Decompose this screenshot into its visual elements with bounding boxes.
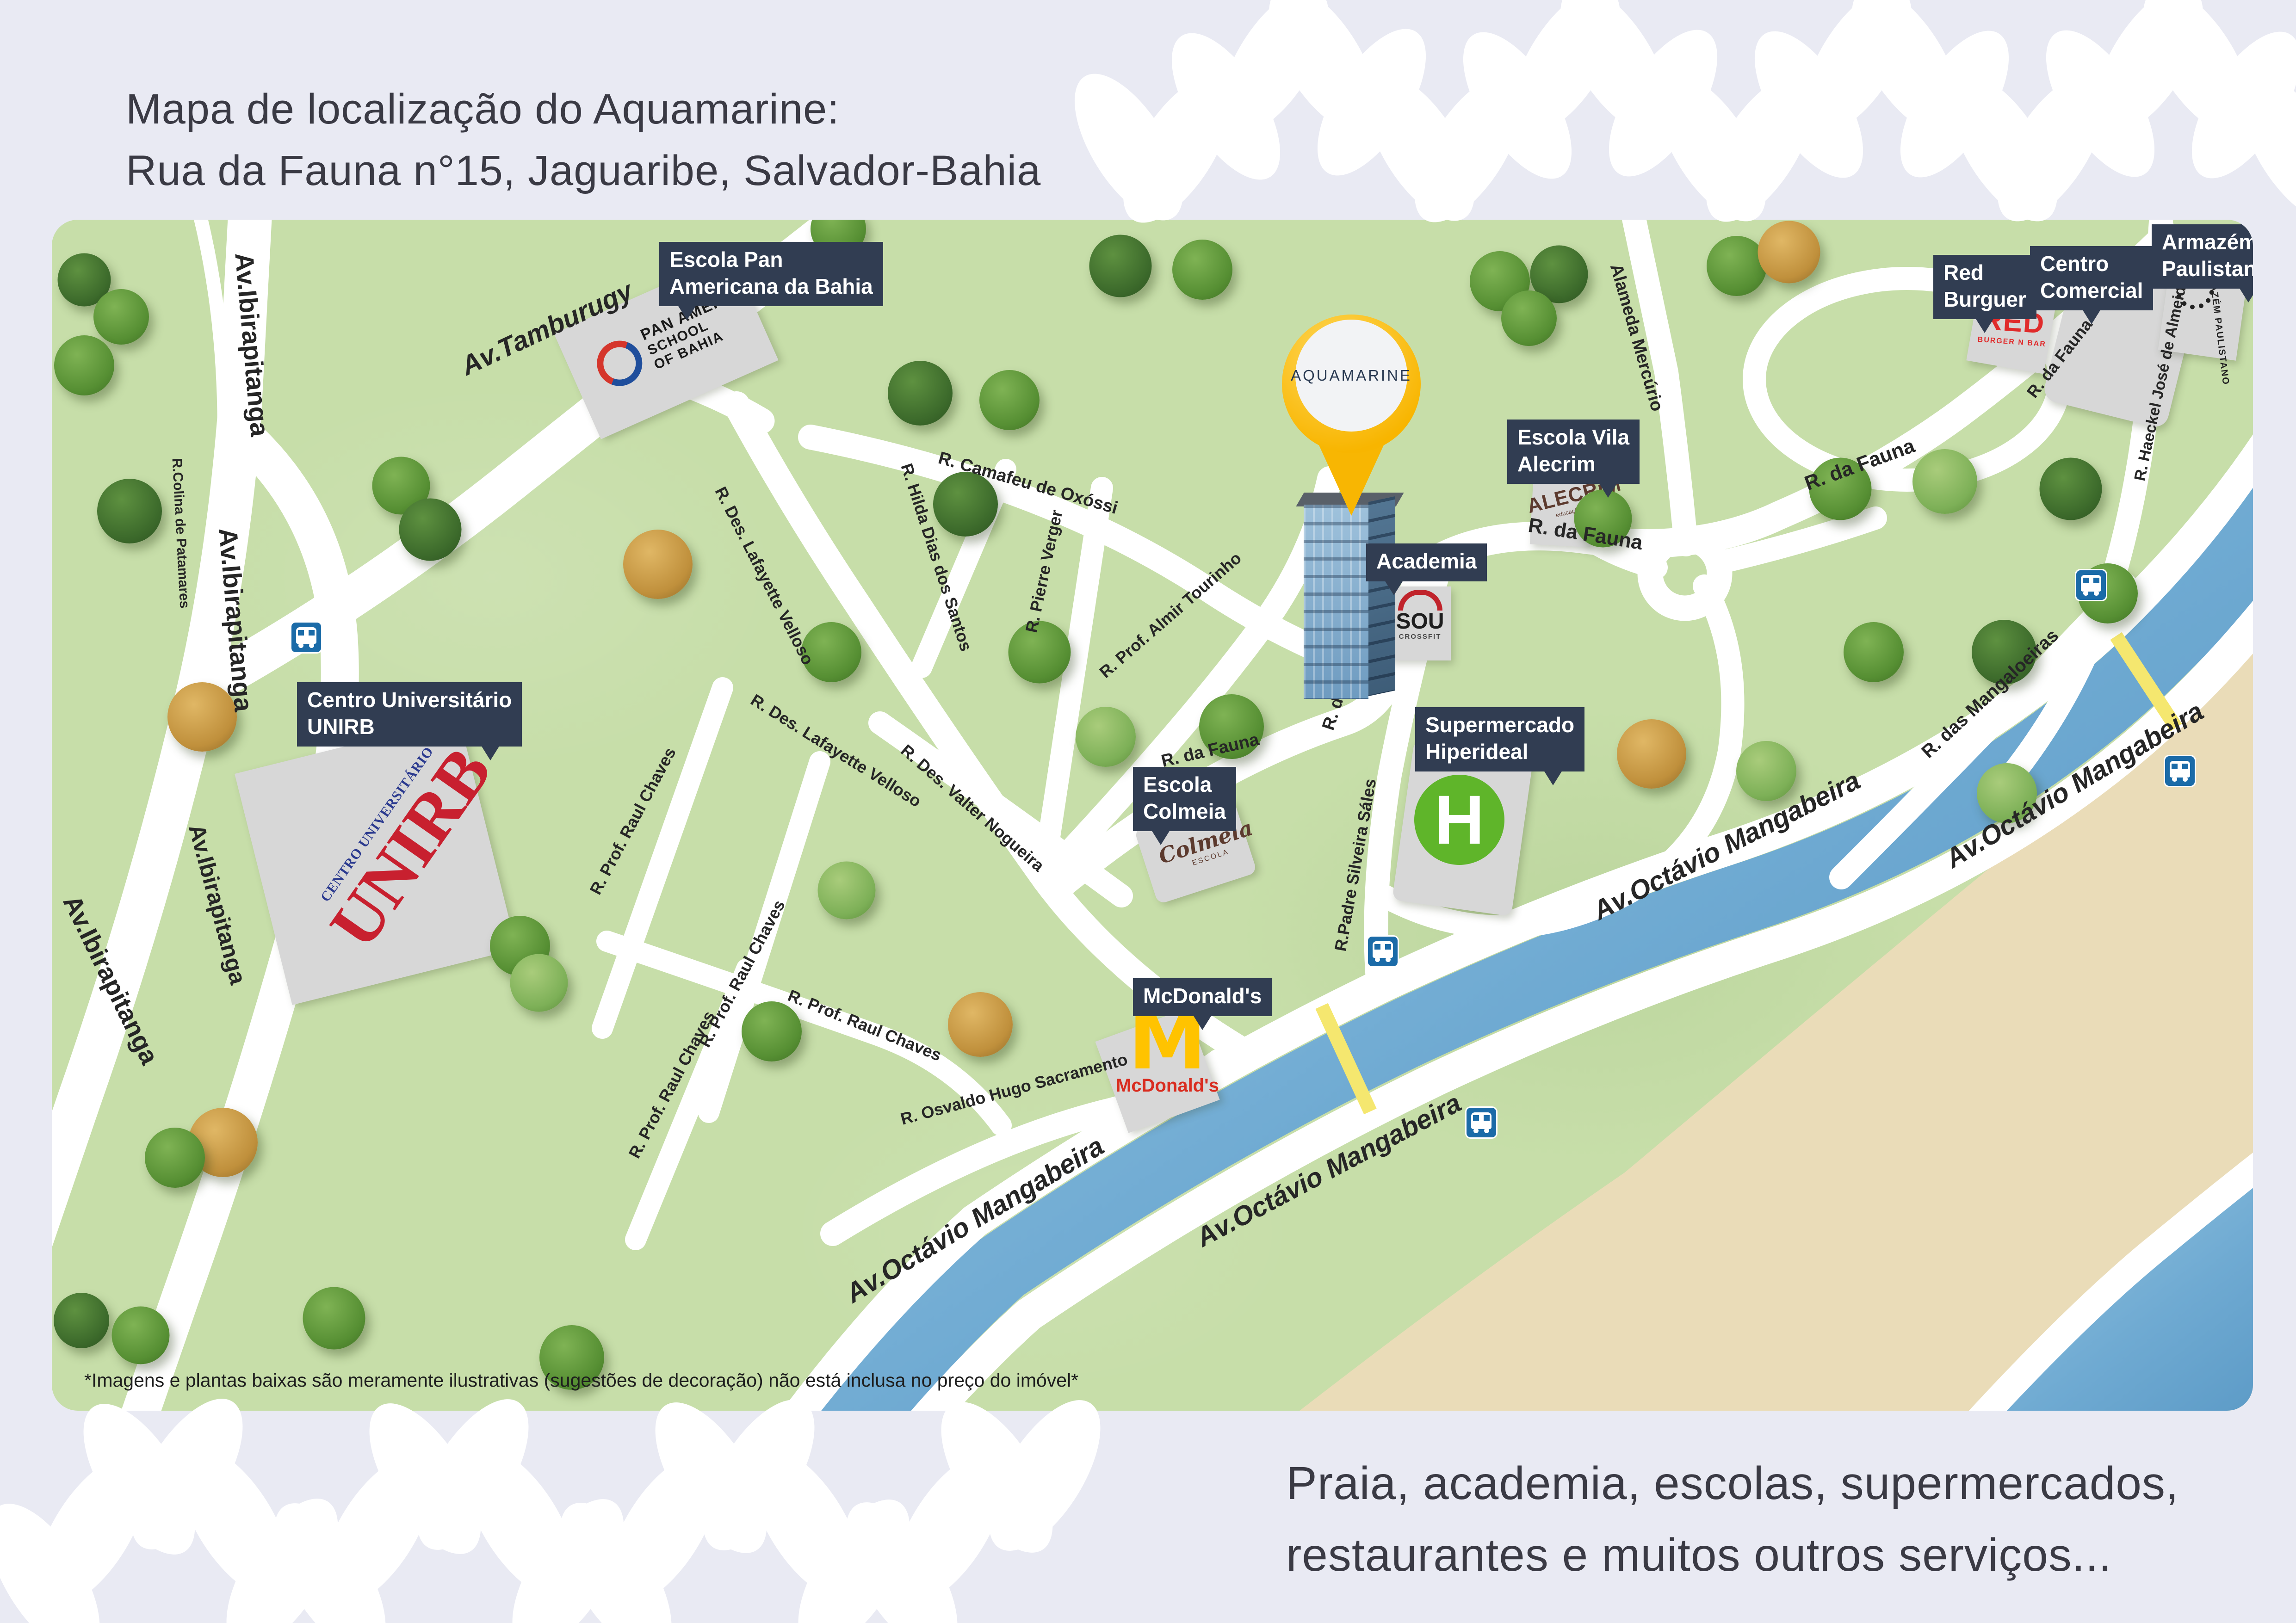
tree [1736,741,1796,801]
tree [54,335,114,395]
title-line2: Rua da Fauna n°15, Jaguaribe, Salvador-B… [126,140,1041,202]
poi-label-line: Paulistano [2162,256,2253,283]
disclaimer-text: *Imagens e plantas baixas são meramente … [84,1370,1078,1391]
tree [1172,240,1232,300]
poi-label-line: Centro [2040,251,2143,278]
bus-stop-icon [1367,935,1399,968]
poi-label-line: Escola [1143,771,1226,798]
tree [510,954,568,1012]
tagline-line2: restaurantes e muitos outros serviços... [1286,1519,2179,1591]
tree [1912,449,1977,514]
poi-pointer [678,305,696,320]
poi-label-line: Armazém [2162,229,2253,256]
sou-arc-icon [1398,590,1442,611]
poi-label-line: Americana da Bahia [669,273,873,300]
tree [1089,235,1152,297]
tree [948,992,1013,1057]
sou-crossfit-logo: SOU CROSSFIT [1393,590,1447,641]
poi-label-escola-pan: Escola PanAmericana da Bahia [659,242,883,306]
poi-pointer [1385,580,1403,595]
bus-stop-icon [2164,755,2196,787]
pin-label: AQUAMARINE [1295,320,1407,432]
title-line1: Mapa de localização do Aquamarine: [126,79,1041,140]
poi-label-line: Colmeia [1143,798,1226,825]
bus-glyph [296,627,316,644]
poi-label-line: Comercial [2040,278,2143,304]
tree [1501,290,1557,346]
poi-label-centro-comercial: CentroComercial [2030,246,2153,310]
tree [888,361,953,426]
poi-label-line: Centro Universitário [307,687,512,714]
bus-stop-icon [2075,569,2107,601]
tree [742,1001,802,1061]
tree [303,1287,365,1350]
poi-label-line: Academia [1376,548,1477,575]
tree [623,530,693,599]
poi-label-line: UNIRB [307,714,512,741]
tree [1758,221,1820,284]
poi-label-line: Red [1943,259,2026,286]
tree [399,499,462,561]
location-map: PAN AMERICAN SCHOOL OF BAHIA CENTRO UNIV… [52,220,2253,1411]
aquamarine-pin: AQUAMARINE [1282,315,1421,453]
tree [1076,707,1136,767]
flyer-page: Mapa de localização do Aquamarine: Rua d… [0,0,2296,1623]
bus-glyph [1471,1112,1491,1129]
poi-label-line: Alecrim [1517,451,1629,478]
poi-pointer [1544,771,1562,785]
poi-label-mcdonalds: McDonald's [1133,978,1272,1016]
tree [145,1128,205,1188]
poi-label-line: Escola Pan [669,247,873,273]
tree [167,682,237,752]
bus-glyph [2081,575,2101,592]
tree [97,479,162,543]
tree [1617,719,1686,789]
tree [1844,622,1904,682]
tower-side-face [1368,496,1395,696]
tree [93,289,149,345]
poi-label-line: Burguer [1943,286,2026,313]
bus-stop-icon [1465,1106,1498,1139]
poi-label-line: McDonald's [1143,983,1262,1010]
tagline-line1: Praia, academia, escolas, supermercados, [1286,1448,2179,1519]
poi-label-escola-colmeia: EscolaColmeia [1133,767,1236,831]
tree [818,862,876,919]
bus-glyph [1373,941,1393,958]
tagline: Praia, academia, escolas, supermercados,… [1286,1448,2179,1591]
poi-label-line: Escola Vila [1517,424,1629,451]
poi-label-line: Hiperideal [1425,739,1574,765]
tower-front-face [1304,505,1368,699]
tree [1707,236,1767,296]
page-title: Mapa de localização do Aquamarine: Rua d… [126,79,1041,202]
poi-label-academia: Academia [1366,543,1487,581]
poi-label-unirb: Centro UniversitárioUNIRB [297,682,522,747]
poi-label-armazem-paulistano: ArmazémPaulistano [2152,224,2253,289]
poi-label-red-burguer: RedBurguer [1933,255,2036,319]
tree [54,1293,109,1348]
tree [2040,458,2102,520]
poi-pointer [1193,1015,1212,1030]
poi-pointer [2082,309,2101,324]
poi-label-hiperideal: SupermercadoHiperideal [1415,707,1584,771]
poi-pointer [1975,318,1994,333]
poi-pointer [2239,288,2253,302]
bus-stop-icon [290,621,322,654]
poi-pointer [1151,830,1170,845]
roundabout [1650,539,1720,608]
bus-glyph [2170,761,2190,778]
tree [112,1307,170,1364]
poi-pointer [1599,483,1617,498]
poi-label-escola-vila-alecrim: Escola VilaAlecrim [1507,420,1640,484]
poi-label-line: Supermercado [1425,712,1574,739]
tree [979,370,1040,430]
poi-pointer [481,746,500,760]
hiperideal-logo: H [1414,775,1504,865]
